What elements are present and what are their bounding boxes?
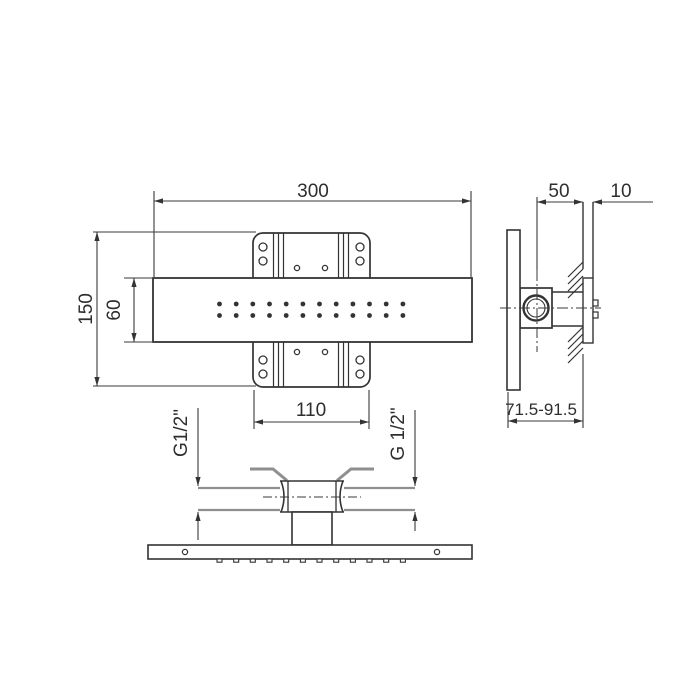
arrow-right-icon — [574, 418, 583, 423]
arrow-down-icon — [412, 477, 417, 486]
connector-block — [292, 512, 332, 545]
nozzle-dot — [250, 302, 255, 307]
nozzle-dot — [384, 302, 389, 307]
arrow-up-icon — [131, 278, 136, 287]
dim-depth-range: 71.5-91.5 — [505, 392, 583, 428]
nozzle-dot — [267, 313, 272, 318]
side-view: 50 10 — [500, 181, 653, 428]
pipe-tab — [593, 300, 598, 306]
nozzle-tick — [317, 559, 322, 562]
arrow-left-icon — [537, 199, 546, 204]
dim-60: 60 — [104, 278, 152, 342]
nozzle-dot — [217, 313, 222, 318]
nozzle-dot — [384, 313, 389, 318]
shower-bar-side — [507, 230, 520, 390]
arrow-right-icon — [574, 199, 583, 204]
nozzle-dot — [301, 302, 306, 307]
nozzle-dot — [267, 302, 272, 307]
arrow-left-icon — [593, 199, 602, 204]
arrow-right-icon — [360, 419, 369, 424]
nozzle-dot — [250, 313, 255, 318]
nozzle-tick — [400, 559, 405, 562]
nozzle-dot — [317, 302, 322, 307]
dim-60-label: 60 — [104, 299, 125, 320]
nozzle-dot — [317, 313, 322, 318]
nozzle-dot — [351, 313, 356, 318]
dim-10-label: 10 — [610, 181, 631, 202]
arrow-down-icon — [94, 377, 99, 386]
nozzle-dot — [401, 313, 406, 318]
arrow-up-icon — [412, 512, 417, 521]
nozzle-dot — [234, 313, 239, 318]
arrow-left-icon — [254, 419, 263, 424]
nozzle-tick — [217, 559, 222, 562]
nozzle-tick — [300, 559, 305, 562]
nozzle-dot — [284, 313, 289, 318]
wall-hatching — [568, 262, 583, 363]
dim-thread-right: G 1/2" — [388, 407, 418, 531]
nozzle-dot — [284, 302, 289, 307]
dim-110: 110 — [254, 390, 369, 429]
dim-300-label: 300 — [297, 181, 329, 202]
dim-depth-label: 71.5-91.5 — [505, 400, 577, 419]
nozzle-dot — [367, 313, 372, 318]
nozzle-tick — [284, 559, 289, 562]
nozzle-tick — [267, 559, 272, 562]
arrow-down-icon — [131, 333, 136, 342]
nozzle-dot — [334, 313, 339, 318]
dim-150-label: 150 — [76, 293, 97, 325]
arrow-left-icon — [154, 198, 163, 203]
pipe-tab — [593, 312, 598, 318]
arrow-up-icon — [195, 512, 200, 521]
thread-right-label: G 1/2" — [388, 407, 409, 460]
nozzle-dot — [351, 302, 356, 307]
arrow-right-icon — [462, 198, 471, 203]
dim-10: 10 — [593, 181, 653, 205]
arrow-left-icon — [508, 418, 517, 423]
bottom-view: G1/2" G 1/2" — [148, 407, 472, 562]
nozzle-dot — [234, 302, 239, 307]
dim-110-label: 110 — [296, 400, 326, 421]
dim-thread-left: G1/2" — [171, 408, 201, 540]
dim-50-label: 50 — [548, 181, 569, 202]
front-view: 300 150 60 — [76, 181, 472, 429]
arrow-up-icon — [94, 232, 99, 241]
nozzle-tick — [384, 559, 389, 562]
nozzle-dot — [334, 302, 339, 307]
technical-drawing-page: 300 150 60 — [0, 0, 700, 700]
nozzle-tick — [367, 559, 372, 562]
dim-50: 50 — [537, 181, 583, 270]
nozzle-dot — [217, 302, 222, 307]
shower-head-technical-drawing: 300 150 60 — [0, 0, 700, 700]
nozzle-tick — [250, 559, 255, 562]
supply-pipe-side — [552, 292, 583, 326]
nozzle-tick — [234, 559, 239, 562]
nozzle-tick — [350, 559, 355, 562]
nozzle-dot — [301, 313, 306, 318]
nozzle-dot — [367, 302, 372, 307]
arrow-down-icon — [195, 477, 200, 486]
escutcheon — [583, 278, 598, 343]
connector-body — [263, 481, 361, 512]
shower-bar-front — [153, 278, 472, 342]
mounting-wings — [250, 469, 374, 481]
nozzle-dot — [401, 302, 406, 307]
shower-bar-bottom — [148, 545, 472, 562]
thread-left-label: G1/2" — [171, 409, 192, 457]
nozzle-tick — [334, 559, 339, 562]
